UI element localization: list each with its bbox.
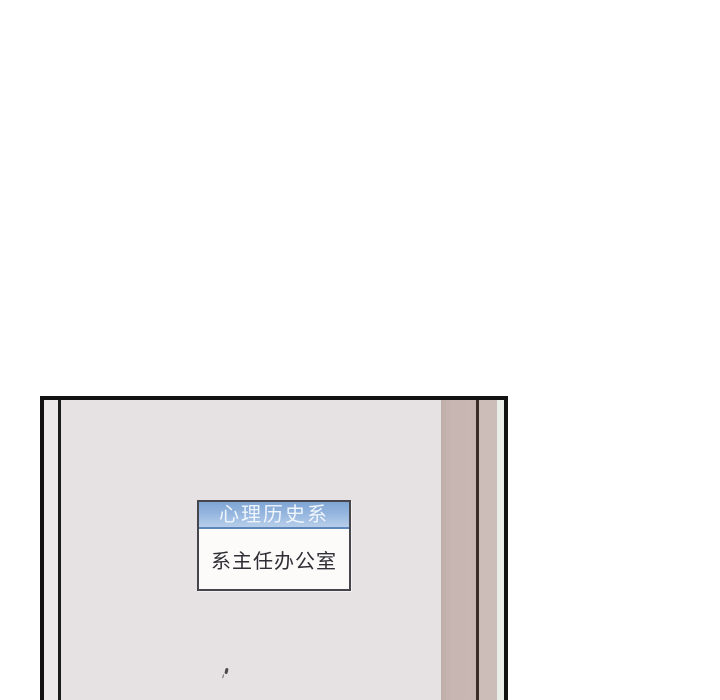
ink-speck bbox=[224, 668, 228, 675]
comic-panel: 心理历史系 系主任办公室 bbox=[40, 396, 508, 700]
door-sign-department-label: 心理历史系 bbox=[199, 502, 349, 529]
comic-page: 心理历史系 系主任办公室 bbox=[0, 0, 720, 700]
wall-strip bbox=[44, 400, 58, 700]
panel-edge-light-strip bbox=[497, 400, 504, 700]
door-frame-strip-inner bbox=[479, 400, 497, 700]
door-sign-room-label: 系主任办公室 bbox=[199, 529, 349, 589]
door-frame-strip-outer bbox=[441, 400, 476, 700]
door-sign: 心理历史系 系主任办公室 bbox=[197, 500, 351, 591]
door-surface: 心理历史系 系主任办公室 bbox=[61, 400, 441, 700]
